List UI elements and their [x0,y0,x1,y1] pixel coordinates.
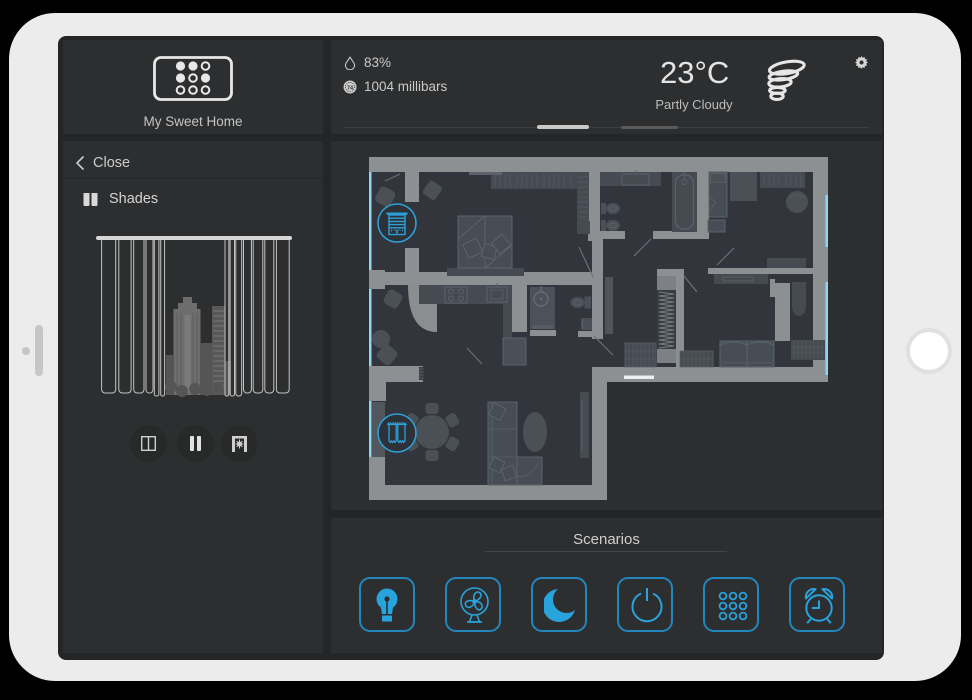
svg-text:74: 74 [347,85,354,91]
